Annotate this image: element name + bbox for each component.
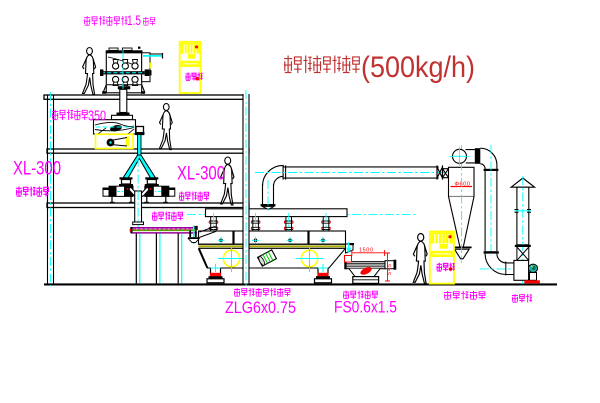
svg-text:545: 545 — [387, 264, 393, 275]
svg-text:ZLG6x0.75: ZLG6x0.75 — [225, 299, 296, 317]
svg-text:FS0.6x1.5: FS0.6x1.5 — [334, 299, 397, 317]
svg-text:1.5: 1.5 — [127, 12, 141, 28]
svg-text:XL-300: XL-300 — [13, 159, 61, 180]
svg-text:(500kg/h): (500kg/h) — [361, 51, 475, 84]
svg-text:350: 350 — [88, 109, 106, 125]
svg-text:XL-300: XL-300 — [177, 164, 225, 185]
svg-text:1500: 1500 — [359, 248, 373, 254]
svg-text:Φ600: Φ600 — [455, 182, 471, 188]
